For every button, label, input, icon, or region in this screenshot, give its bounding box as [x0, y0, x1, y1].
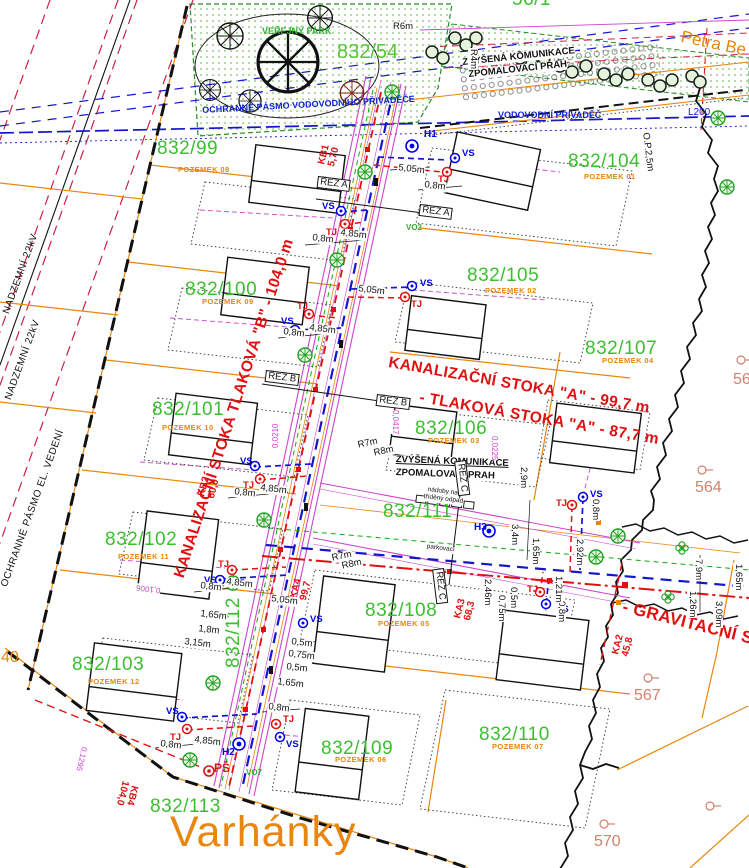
parcel-number-832-54: 832/54 [337, 42, 398, 63]
tj-label: TJ [556, 499, 567, 509]
vs-label: VS [240, 457, 253, 467]
pozemek-02: POZEMEK 02 [485, 287, 537, 295]
neighbor-56: 56 [733, 372, 749, 389]
dim-3-4m: 3,4m [509, 523, 519, 546]
tj-label: TJ [411, 300, 422, 310]
slope-0-1006: 0,1006 [136, 583, 161, 594]
slope-0-0210: 0,0210 [272, 424, 280, 448]
pozemek-12: POZEMEK 12 [88, 678, 140, 686]
parcel-number-56-1: 56/1 [512, 0, 551, 10]
pozemek-11: POZEMEK 11 [118, 553, 169, 561]
tj-label: TJ [283, 715, 294, 725]
vs-label: VS [420, 279, 433, 289]
parcel-number-832-111: 832/111 [383, 502, 452, 522]
vs-label: VS [322, 202, 335, 212]
lighting-vo2-label: VO2 [406, 224, 422, 232]
setback-lines [88, 148, 650, 828]
dim-r4m: R4m [468, 48, 478, 70]
parcel-number-832-105: 832/105 [467, 266, 539, 286]
dim-3-09m: 3,09m [713, 600, 723, 628]
parcel-number-832-104: 832/104 [568, 152, 640, 172]
tj-label: TJ [527, 585, 538, 595]
dim-r6m: R6m [392, 22, 414, 32]
site-plan: 832/54 832/99 832/100 832/101 832/102 83… [0, 0, 749, 868]
pozemek-05: POZEMEK 05 [378, 620, 430, 628]
park-name: VEŘEJNÝ PARK [262, 27, 331, 36]
dim-0-8m: 0,8m [556, 600, 566, 623]
hydrant-h3-label: H3 [474, 523, 487, 534]
power-line-22kv [0, 0, 193, 543]
dim-0-75m: 0,75m [496, 594, 506, 622]
house-104 [444, 132, 540, 210]
pozemek-08: POZEMEK 08 [178, 166, 230, 174]
neighbor-567: 567 [634, 688, 661, 705]
hydrant-h1-label: H1 [424, 130, 437, 141]
pozemek-04: POZEMEK 04 [602, 357, 654, 365]
vs-label: VS [281, 317, 294, 327]
pozemek-07: POZEMEK 07 [492, 743, 544, 751]
vs-label: VS [310, 615, 323, 625]
dim-2-46m: 2,46m [482, 578, 492, 606]
pozemek-01: POZEMEK 01 [584, 173, 636, 181]
vs-label: VS [286, 740, 299, 750]
slope-0-0417: 0,0417 [391, 410, 399, 434]
water-main-label: VODOVODNÍ PŘIVADĚČ [498, 111, 601, 120]
pozemek-06: POZEMEK 06 [335, 756, 387, 764]
dim-2-92m: 2,92m [574, 538, 584, 566]
dim-0-5m: 0,5m [508, 586, 518, 609]
pump-station-label: PŠ [214, 762, 230, 775]
hydrant-h1 [406, 140, 418, 152]
pozemek-03: POZEMEK 03 [428, 437, 480, 445]
vs-label: VS [166, 707, 179, 717]
parcel-number-832-108: 832/108 [365, 601, 437, 621]
parcel-number-832-112: 832/112 [224, 597, 244, 668]
dim-1-65m: 1,65m [733, 563, 743, 591]
dim-1-65m: 1,65m [530, 537, 540, 565]
tj-label: TJ [218, 560, 229, 570]
dim-1-21m: 1,21m [553, 575, 563, 603]
house-110 [496, 610, 589, 690]
parcel-number-832-103: 832/103 [72, 655, 144, 675]
parcel-number-832-102: 832/102 [105, 530, 177, 550]
pump-station-marker [204, 766, 214, 776]
dim-1-26m: 1,26m [687, 590, 697, 618]
neighbor-564: 564 [695, 480, 722, 497]
dim-7-9m: 7,9m [693, 558, 703, 581]
pozemek-09: POZEMEK 09 [202, 298, 254, 306]
pozemek-10: POZEMEK 10 [162, 424, 214, 432]
tj-label: TJ [297, 302, 308, 312]
lighting-vo7-label: VO7 [246, 769, 262, 777]
hydrant-h2-label: H2 [222, 748, 235, 759]
water-main-dn: L200 [688, 108, 710, 119]
jagged-boundary [560, 75, 748, 868]
dim-0-8m: 0,8m [590, 498, 600, 521]
vs-label: VS [462, 149, 475, 159]
parcel-number-832-99: 832/99 [157, 139, 218, 159]
neighbor-570: 570 [594, 834, 621, 851]
slope-0-0225: 0,0225 [490, 436, 498, 460]
neighbor-40: 40 [1, 650, 19, 667]
parcel-number-832-101: 832/101 [152, 400, 224, 420]
locality-name: Varhánky [170, 810, 356, 855]
dim-2-9m: 2,9m [518, 466, 528, 489]
